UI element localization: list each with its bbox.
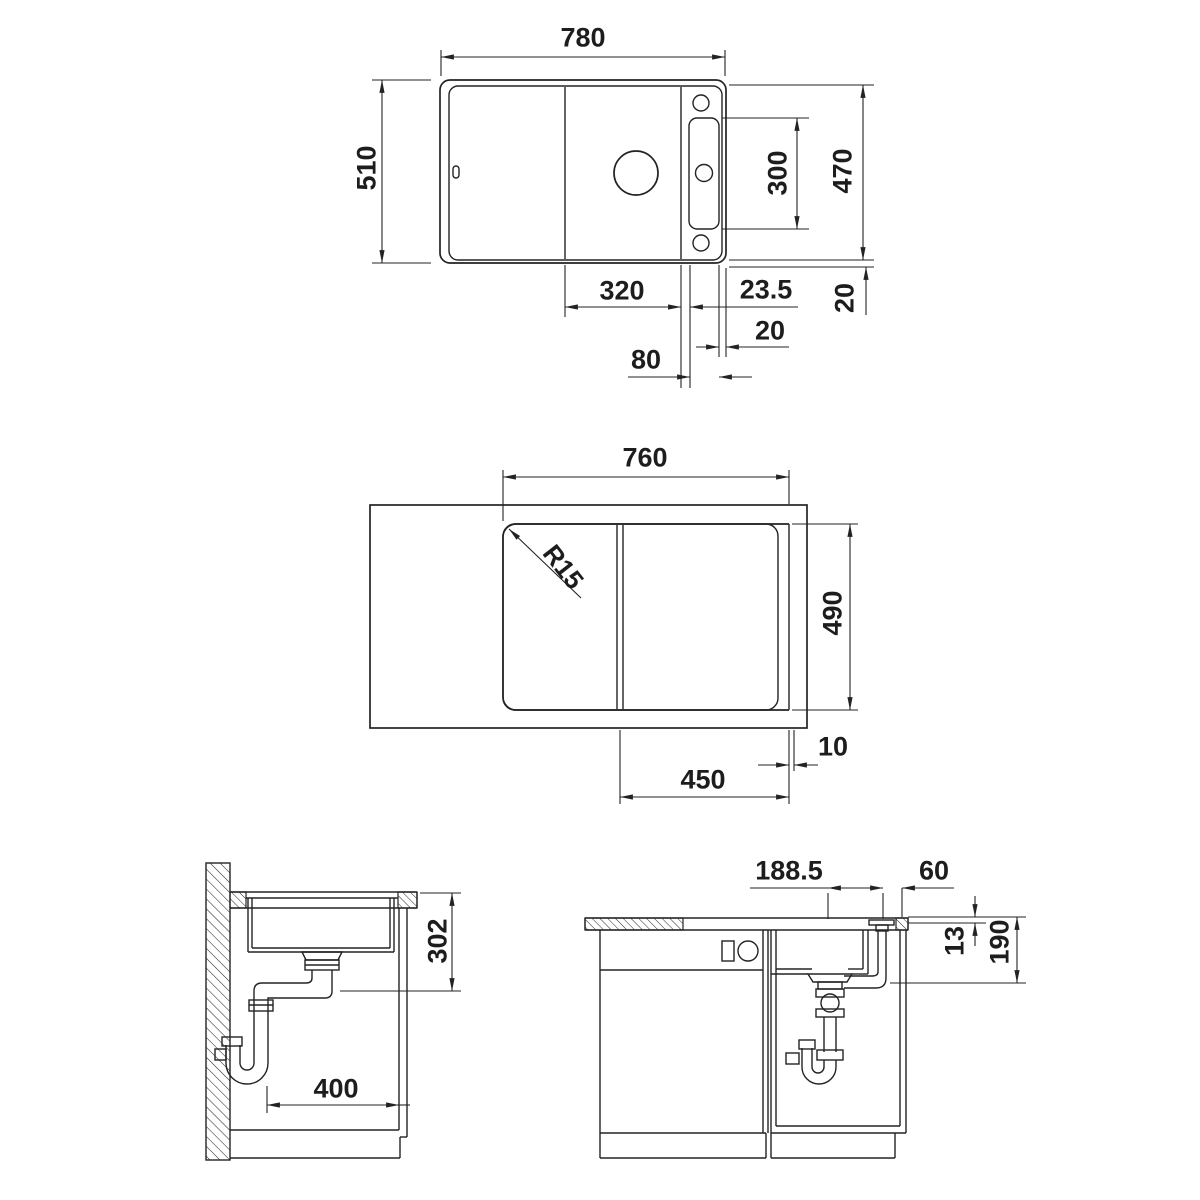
outlet-stub: [786, 1053, 799, 1064]
tap-hole-bottom: [693, 235, 709, 251]
top-view: [372, 50, 874, 388]
drain-hole: [614, 151, 658, 195]
dim-rim-width: 20: [830, 283, 861, 313]
dim-bowl-width: 320: [599, 276, 644, 307]
wall-hatch: [206, 863, 230, 1160]
side-section-view: [206, 863, 461, 1160]
dim-control-to-edge: 60: [919, 856, 949, 887]
worktop-outline: [370, 505, 807, 728]
dim-edge-gap: 10: [818, 732, 848, 763]
dim-drain-to-control: 188.5: [755, 856, 823, 887]
dim-overall-depth: 510: [352, 145, 383, 190]
dim-panel-to-edge: 20: [755, 316, 785, 347]
drain-pipe: [268, 991, 332, 1063]
tap-panel-recess: [689, 118, 719, 229]
underside-view: [370, 470, 858, 804]
dim-flush-depth: 13: [940, 926, 971, 956]
dim-outlet-depth: 190: [985, 919, 1016, 964]
control-knob: [869, 920, 894, 925]
overflow-slot: [453, 166, 459, 178]
dim-cutout-width: 760: [622, 443, 667, 474]
tap-hole-middle: [696, 165, 713, 182]
trap-bend: [240, 1063, 254, 1070]
tap-hole-top: [693, 95, 709, 111]
technical-drawing-canvas: 780 510 470 300 320 23.5 20 80 20 760 R1…: [0, 0, 1200, 1200]
worktop-hatch-edge: [896, 918, 908, 930]
trap-bend-front: [812, 1067, 824, 1073]
drawer-symbol-circle: [738, 941, 758, 961]
worktop-hatch-right: [398, 892, 417, 908]
drawing-linework: [0, 0, 1200, 1200]
dim-cutout-depth: 490: [818, 590, 849, 635]
dim-panel-width: 80: [631, 345, 661, 376]
dim-overall-width: 780: [560, 23, 605, 54]
dim-tap-panel-height: 300: [763, 150, 794, 195]
dim-bowl-to-panel: 23.5: [740, 275, 793, 306]
dim-installation-depth: 302: [423, 918, 454, 963]
dim-drain-offset: 400: [313, 1074, 358, 1105]
sink-outer-rim: [440, 80, 726, 263]
dim-board-width: 450: [680, 765, 725, 796]
drawer-symbol-square: [722, 941, 734, 961]
worktop-hatch-left: [230, 892, 246, 908]
worktop-hatch: [585, 918, 683, 930]
strainer-flange: [302, 952, 342, 960]
strainer-flange-front: [808, 974, 852, 982]
dim-inner-depth: 470: [828, 148, 859, 193]
